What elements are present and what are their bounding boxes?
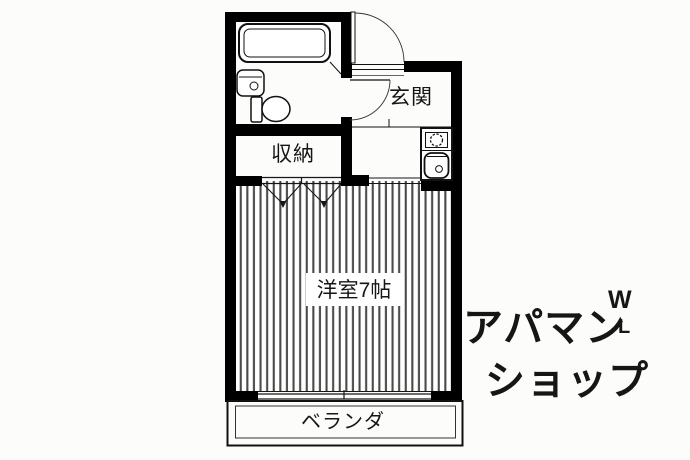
entrance-label: 玄関 (389, 86, 433, 109)
floor-plan-image: アパマン W L ショップ (0, 0, 690, 460)
watermark-mark-top: W (608, 286, 632, 314)
balcony-label: ベランダ (301, 410, 385, 433)
washbasin-icon (237, 70, 264, 96)
closet-right-wall-block (341, 175, 369, 186)
left-wall (225, 12, 236, 402)
closet-left-wall-block (225, 176, 262, 186)
kitchen-unit (421, 128, 452, 180)
storage-label: 収納 (271, 143, 315, 166)
entrance-door-leaf (351, 12, 355, 63)
watermark-text-line2: ショップ (485, 359, 649, 403)
toilet-tank-icon (251, 97, 262, 122)
watermark-text-line1: アパマン (463, 306, 626, 350)
right-wall (451, 61, 462, 402)
western-room-label: 洋室7帖 (317, 279, 392, 302)
bathroom-top-wall (225, 12, 353, 22)
bathroom-storage-divider-wall (225, 124, 352, 136)
toilet-bowl-icon (262, 97, 290, 122)
bathroom-right-wall-upper (341, 12, 352, 78)
floor-plan-svg: アパマン W L ショップ (0, 0, 690, 460)
bathtub-icon (239, 24, 330, 62)
watermark-mark-bottom: L (618, 316, 630, 338)
